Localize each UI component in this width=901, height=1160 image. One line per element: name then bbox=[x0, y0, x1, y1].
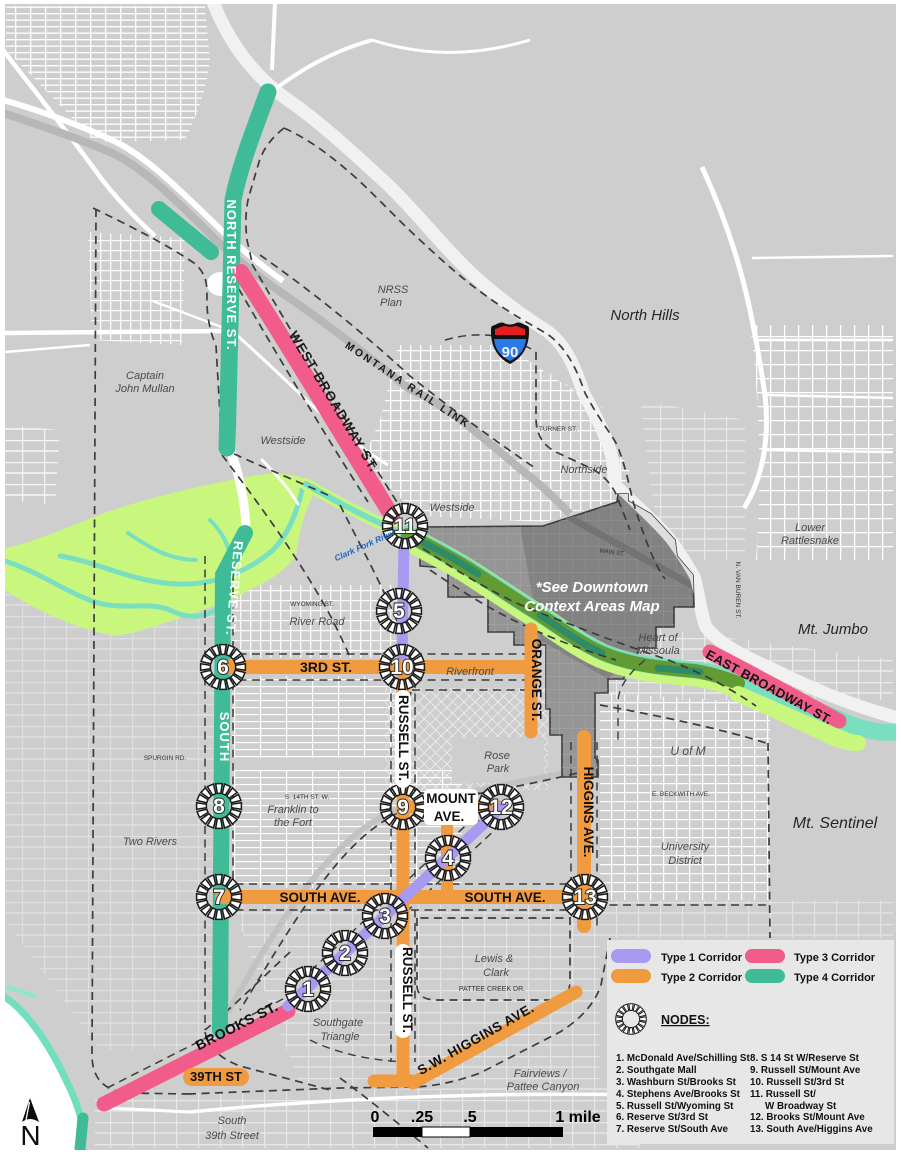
svg-text:Triangle: Triangle bbox=[321, 1031, 360, 1043]
svg-text:River Road: River Road bbox=[289, 616, 345, 628]
svg-text:Clark: Clark bbox=[483, 967, 509, 979]
svg-text:4. Stephens Ave/Brooks St: 4. Stephens Ave/Brooks St bbox=[616, 1089, 741, 1100]
svg-text:HIGGINS AVE.: HIGGINS AVE. bbox=[581, 767, 596, 858]
svg-text:NRSS: NRSS bbox=[378, 284, 409, 296]
svg-text:9: 9 bbox=[397, 796, 409, 819]
svg-text:NODES:: NODES: bbox=[661, 1013, 710, 1027]
svg-text:Fairviews /: Fairviews / bbox=[514, 1068, 568, 1080]
svg-text:PATTEE CREEK DR.: PATTEE CREEK DR. bbox=[459, 986, 525, 993]
svg-text:.25: .25 bbox=[411, 1109, 433, 1126]
svg-text:3RD ST.: 3RD ST. bbox=[300, 659, 352, 675]
svg-text:11. Russell St/: 11. Russell St/ bbox=[750, 1089, 816, 1100]
svg-text:SOUTH: SOUTH bbox=[217, 712, 232, 763]
svg-text:Type 4 Corridor: Type 4 Corridor bbox=[794, 972, 876, 984]
svg-text:Type 1 Corridor: Type 1 Corridor bbox=[661, 952, 743, 964]
svg-text:W Broadway St: W Broadway St bbox=[765, 1101, 837, 1112]
svg-text:9. Russell St/Mount Ave: 9. Russell St/Mount Ave bbox=[750, 1065, 861, 1076]
svg-text:5. Russell St/Wyoming St: 5. Russell St/Wyoming St bbox=[616, 1101, 734, 1112]
svg-text:8: 8 bbox=[213, 795, 225, 818]
svg-text:ORANGE ST.: ORANGE ST. bbox=[529, 639, 544, 722]
svg-text:N: N bbox=[20, 1120, 40, 1151]
svg-text:Northside: Northside bbox=[560, 464, 607, 476]
svg-text:2: 2 bbox=[339, 942, 351, 965]
svg-text:MOUNT: MOUNT bbox=[426, 791, 476, 806]
svg-text:TURNER ST.: TURNER ST. bbox=[539, 426, 577, 433]
svg-text:E. BECKWITH AVE.: E. BECKWITH AVE. bbox=[652, 791, 710, 798]
svg-text:S. 14TH ST. W.: S. 14TH ST. W. bbox=[285, 794, 330, 801]
svg-text:WYOMING ST.: WYOMING ST. bbox=[290, 601, 334, 608]
svg-text:1. McDonald Ave/Schilling St: 1. McDonald Ave/Schilling St bbox=[616, 1053, 750, 1064]
svg-text:Context Areas Map: Context Areas Map bbox=[524, 598, 659, 615]
svg-text:13: 13 bbox=[573, 886, 596, 909]
svg-text:Mt. Jumbo: Mt. Jumbo bbox=[798, 621, 868, 638]
svg-text:39th Street: 39th Street bbox=[205, 1130, 260, 1142]
svg-text:Two Rivers: Two Rivers bbox=[123, 836, 178, 848]
svg-text:90: 90 bbox=[502, 344, 519, 361]
svg-text:John Mullan: John Mullan bbox=[114, 383, 174, 395]
svg-text:the Fort: the Fort bbox=[274, 817, 313, 829]
svg-text:SOUTH AVE.: SOUTH AVE. bbox=[279, 890, 360, 905]
svg-text:10: 10 bbox=[390, 656, 413, 679]
svg-text:13. South Ave/Higgins Ave: 13. South Ave/Higgins Ave bbox=[750, 1124, 873, 1135]
svg-text:Rattlesnake: Rattlesnake bbox=[781, 535, 839, 547]
svg-text:7. Reserve St/South Ave: 7. Reserve St/South Ave bbox=[616, 1124, 729, 1135]
svg-text:University: University bbox=[661, 841, 711, 853]
svg-text:Franklin to: Franklin to bbox=[267, 804, 318, 816]
svg-text:*See Downtown: *See Downtown bbox=[536, 579, 649, 596]
svg-text:Westside: Westside bbox=[429, 502, 474, 514]
svg-text:Westside: Westside bbox=[260, 435, 305, 447]
svg-text:Rose: Rose bbox=[484, 750, 510, 762]
svg-text:Riverfront: Riverfront bbox=[446, 666, 495, 678]
svg-text:U of M: U of M bbox=[670, 744, 705, 758]
svg-text:Park: Park bbox=[487, 763, 510, 775]
svg-text:.5: .5 bbox=[463, 1109, 476, 1126]
svg-text:Lewis &: Lewis & bbox=[475, 953, 514, 965]
svg-text:8. S 14 St W/Reserve St: 8. S 14 St W/Reserve St bbox=[750, 1053, 860, 1064]
svg-text:3: 3 bbox=[379, 905, 391, 928]
svg-text:District: District bbox=[668, 855, 703, 867]
svg-text:Southgate: Southgate bbox=[313, 1017, 363, 1029]
svg-text:Type 3 Corridor: Type 3 Corridor bbox=[794, 952, 876, 964]
svg-text:SPURGIN RD.: SPURGIN RD. bbox=[144, 755, 187, 762]
svg-text:South: South bbox=[218, 1115, 247, 1127]
svg-text:Captain: Captain bbox=[126, 370, 164, 382]
svg-text:5: 5 bbox=[393, 600, 405, 623]
svg-text:2. Southgate Mall: 2. Southgate Mall bbox=[616, 1065, 697, 1076]
svg-text:Lower: Lower bbox=[795, 522, 826, 534]
svg-text:AVE.: AVE. bbox=[434, 809, 465, 824]
svg-text:0: 0 bbox=[371, 1109, 380, 1126]
svg-text:Missoula: Missoula bbox=[636, 645, 679, 657]
svg-text:11: 11 bbox=[394, 515, 417, 538]
svg-text:1 mile: 1 mile bbox=[555, 1109, 600, 1126]
svg-text:12. Brooks St/Mount Ave: 12. Brooks St/Mount Ave bbox=[750, 1112, 865, 1123]
svg-text:6. Reserve St/3rd St: 6. Reserve St/3rd St bbox=[616, 1112, 709, 1123]
svg-text:7: 7 bbox=[213, 886, 225, 909]
svg-text:12: 12 bbox=[489, 796, 512, 819]
svg-text:3. Washburn St/Brooks St: 3. Washburn St/Brooks St bbox=[616, 1077, 737, 1088]
svg-text:RUSSELL ST.: RUSSELL ST. bbox=[400, 947, 415, 1033]
svg-text:Pattee Canyon: Pattee Canyon bbox=[507, 1081, 580, 1093]
svg-text:6: 6 bbox=[217, 656, 229, 679]
svg-text:North Hills: North Hills bbox=[610, 307, 680, 324]
svg-text:Mt. Sentinel: Mt. Sentinel bbox=[793, 815, 878, 832]
svg-text:39TH ST: 39TH ST bbox=[190, 1069, 242, 1084]
svg-text:4: 4 bbox=[442, 847, 454, 870]
svg-text:RUSSELL ST.: RUSSELL ST. bbox=[396, 695, 411, 781]
svg-text:1: 1 bbox=[302, 978, 314, 1001]
svg-text:SOUTH AVE.: SOUTH AVE. bbox=[464, 890, 545, 905]
svg-text:Heart of: Heart of bbox=[638, 632, 678, 644]
svg-text:N. VAN BUREN ST.: N. VAN BUREN ST. bbox=[734, 562, 741, 619]
svg-text:10. Russell St/3rd St: 10. Russell St/3rd St bbox=[750, 1077, 845, 1088]
svg-text:Plan: Plan bbox=[380, 297, 402, 309]
svg-text:Type 2 Corridor: Type 2 Corridor bbox=[661, 972, 743, 984]
svg-text:NORTH RESERVE ST.: NORTH RESERVE ST. bbox=[224, 199, 239, 350]
